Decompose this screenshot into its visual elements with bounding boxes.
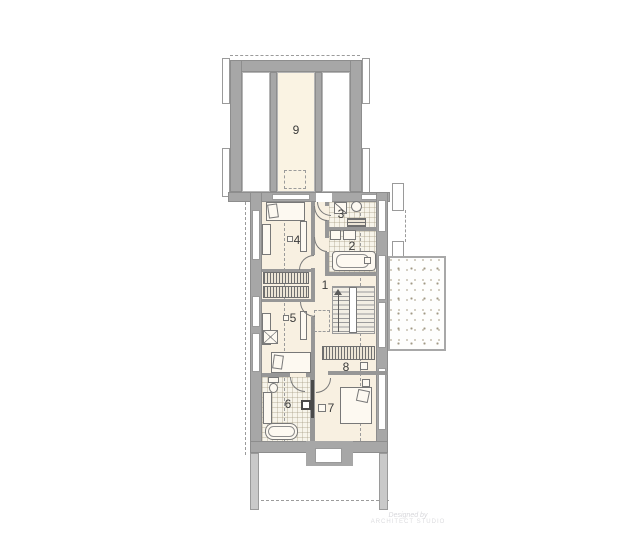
terrace-wall-top bbox=[230, 60, 362, 72]
room-label-8: 8 bbox=[343, 360, 350, 374]
terrace-mullion-right bbox=[315, 72, 322, 192]
balcony-deck bbox=[388, 256, 446, 351]
bathtub-drain-room2 bbox=[364, 257, 371, 264]
desk-icon-room4 bbox=[262, 224, 271, 255]
terrace-pillar-right-lower bbox=[362, 148, 370, 197]
watermark-line2: ARCHITECT STUDIO bbox=[368, 519, 448, 525]
terrace-pillar-left-lower bbox=[222, 148, 230, 197]
roof-dashed-right bbox=[405, 210, 406, 242]
roof-dashed-bottom bbox=[251, 500, 389, 501]
partition-room8-room7 bbox=[328, 371, 388, 375]
partition-hall-wardrobe bbox=[311, 268, 315, 302]
terrace-skylight-left bbox=[242, 72, 270, 192]
room-label-2: 2 bbox=[349, 239, 356, 253]
partition-room5-bath6-b bbox=[306, 373, 311, 377]
pocket-door-room7 bbox=[311, 380, 314, 418]
room-label-6: 6 bbox=[285, 397, 292, 411]
wardrobe-band-2 bbox=[263, 286, 309, 298]
bathtub-inner-room6 bbox=[268, 426, 295, 437]
terrace-pillar-right-upper bbox=[362, 58, 370, 104]
stair-direction-line bbox=[338, 294, 339, 332]
pillar-top-right-1 bbox=[392, 183, 404, 211]
room-label-9: 9 bbox=[293, 123, 300, 137]
stair-railing bbox=[349, 287, 357, 333]
radiator-icon-room3 bbox=[347, 218, 366, 227]
watermark: Designed by ARCHITECT STUDIO bbox=[368, 512, 448, 525]
pillow-icon-room5 bbox=[272, 354, 284, 369]
shelf-icon-room4 bbox=[300, 221, 307, 252]
window-left-3 bbox=[252, 333, 260, 372]
floor-plan: 9 4 3 2 1 5 8 6 7 Designed by ARCHITECT … bbox=[0, 0, 638, 556]
pillow-icon-room7 bbox=[356, 389, 370, 403]
cabinet-icon-room8 bbox=[360, 362, 368, 370]
door-opening-top bbox=[316, 193, 332, 202]
room-label-7: 7 bbox=[328, 401, 335, 415]
window-left-2 bbox=[252, 296, 260, 327]
room-label-3: 3 bbox=[338, 207, 345, 221]
terrace-wall-right bbox=[350, 60, 362, 192]
sink-icon-1 bbox=[330, 230, 341, 240]
counter-icon-room6 bbox=[263, 392, 272, 424]
pillow-icon-room4 bbox=[267, 203, 279, 218]
room-label-4: 4 bbox=[294, 233, 301, 247]
window-left-1 bbox=[252, 210, 260, 260]
window-right-3 bbox=[378, 368, 386, 430]
shelf-icon-room5 bbox=[300, 311, 307, 340]
chair-icon-room4 bbox=[287, 236, 293, 242]
cabinet-icon-room5 bbox=[263, 330, 278, 344]
roof-dashed-left bbox=[245, 192, 246, 455]
balcony-door bbox=[378, 302, 386, 348]
terrace-skylight-right bbox=[322, 72, 350, 192]
partition-bath2-hall bbox=[329, 272, 377, 276]
eave-stub-right bbox=[379, 453, 388, 510]
room-label-1: 1 bbox=[322, 278, 329, 292]
roof-dashed-top bbox=[230, 55, 360, 56]
wardrobe-band-1 bbox=[263, 272, 309, 284]
wardrobe-under-stairs bbox=[322, 346, 375, 360]
chair-icon-room5 bbox=[283, 315, 289, 321]
terrace-pillar-left-upper bbox=[222, 58, 230, 104]
chair-icon-room7 bbox=[318, 404, 326, 412]
eave-stub-left bbox=[250, 453, 259, 510]
nightstand-icon-room7 bbox=[362, 379, 370, 387]
chimney-flue bbox=[315, 448, 342, 463]
stair-up-arrow-icon bbox=[334, 289, 342, 295]
terrace-mullion-left bbox=[270, 72, 277, 192]
window-top-1 bbox=[272, 194, 310, 200]
window-right-1 bbox=[378, 200, 386, 232]
watermark-line1: Designed by bbox=[368, 512, 448, 519]
terrace-dashed-hatch bbox=[284, 170, 306, 189]
boiler-icon bbox=[351, 201, 362, 212]
hall-dashed-hatch bbox=[314, 310, 330, 332]
terrace-wall-left bbox=[230, 60, 242, 192]
window-right-2 bbox=[378, 255, 386, 300]
towel-radiator-icon bbox=[301, 400, 311, 410]
room-label-5: 5 bbox=[290, 311, 297, 325]
